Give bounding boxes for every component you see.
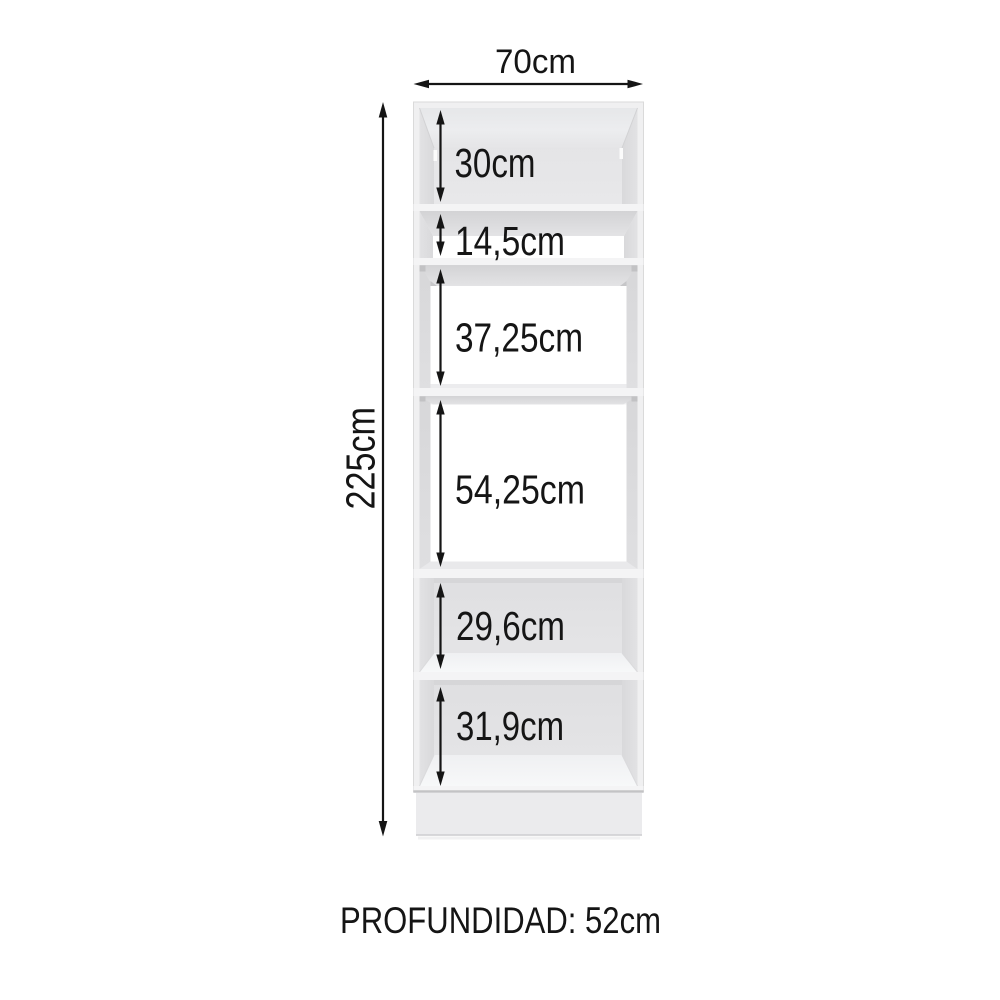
svg-text:54,25cm: 54,25cm [455, 467, 585, 513]
svg-text:70cm: 70cm [495, 43, 576, 81]
svg-text:37,25cm: 37,25cm [455, 315, 583, 361]
svg-text:31,9cm: 31,9cm [456, 703, 564, 749]
svg-text:29,6cm: 29,6cm [456, 603, 565, 649]
svg-text:PROFUNDIDAD: 52cm: PROFUNDIDAD: 52cm [340, 900, 661, 941]
svg-text:14,5cm: 14,5cm [455, 218, 565, 264]
svg-text:30cm: 30cm [455, 140, 536, 186]
svg-text:225cm: 225cm [338, 407, 384, 510]
